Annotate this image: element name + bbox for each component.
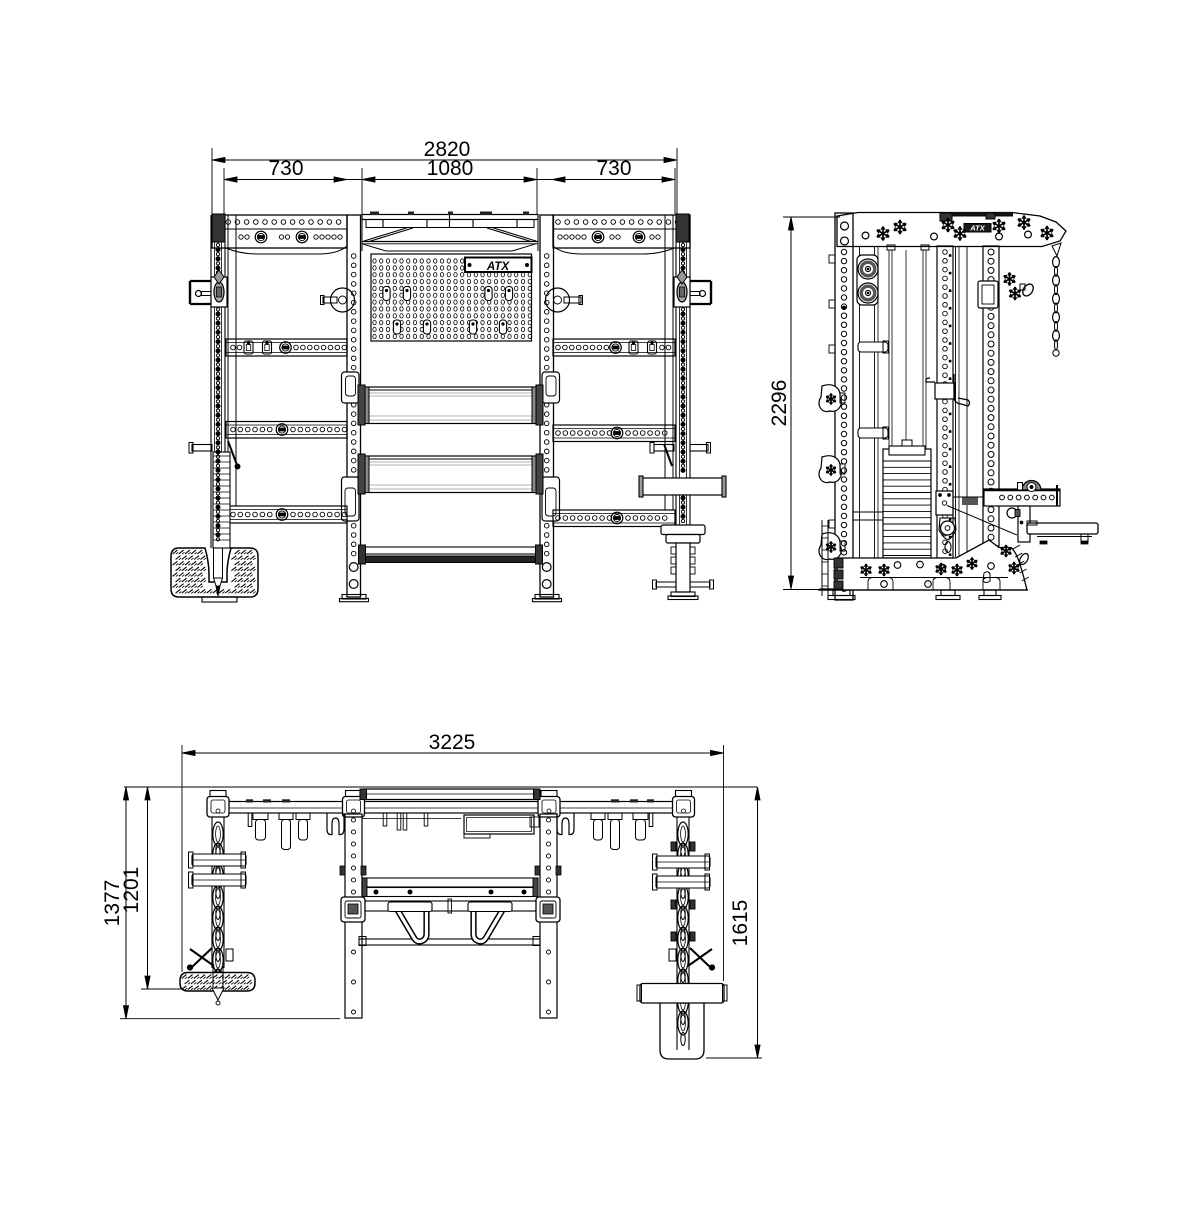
svg-text:ATX: ATX [486,261,510,273]
svg-text:ATX: ATX [969,224,985,233]
svg-text:3225: 3225 [429,731,476,754]
svg-text:730: 730 [596,157,631,180]
svg-text:2296: 2296 [768,380,791,427]
svg-text:1080: 1080 [427,157,474,180]
svg-text:1615: 1615 [729,900,752,947]
svg-text:1201: 1201 [120,867,143,914]
svg-text:730: 730 [268,157,303,180]
